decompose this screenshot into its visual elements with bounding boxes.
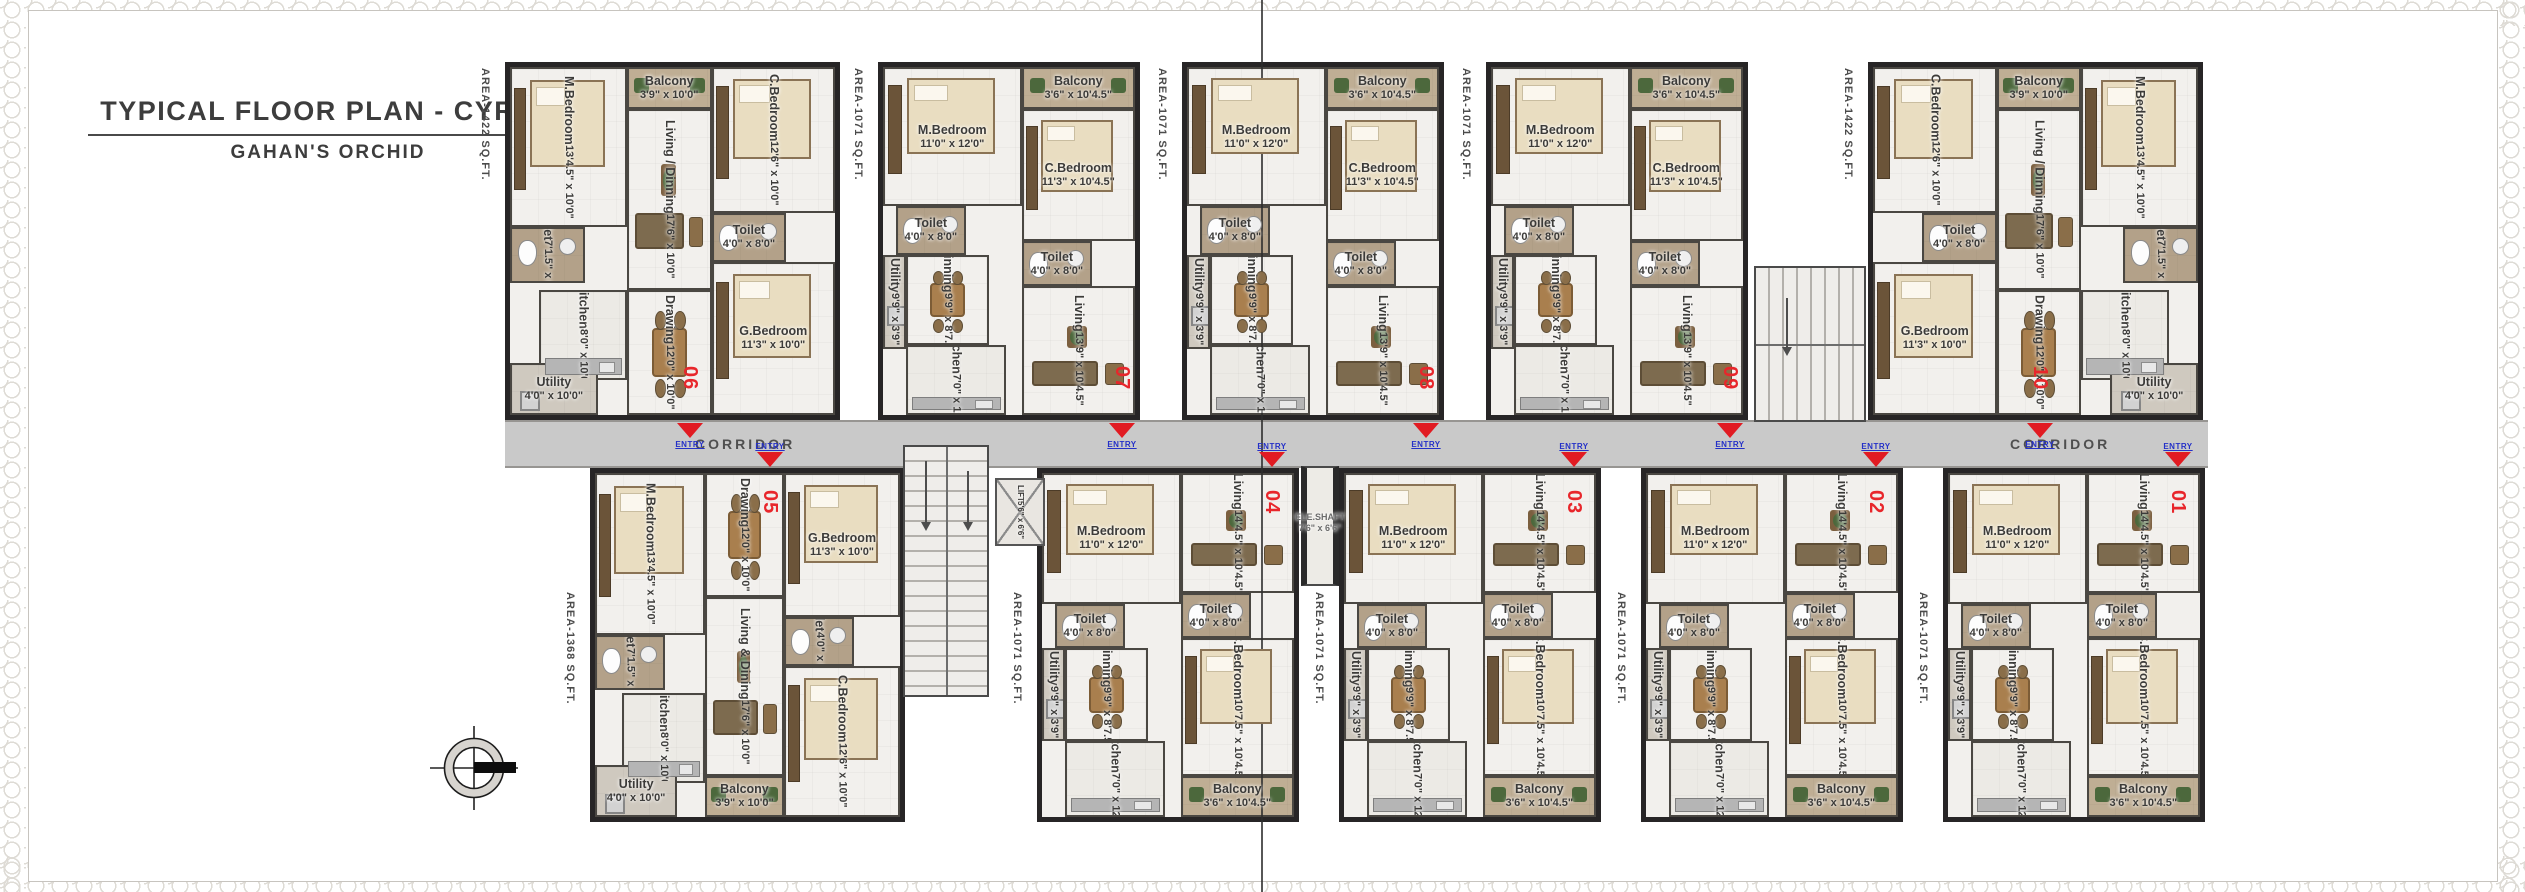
unit-number: 10 (2028, 366, 2051, 390)
room-toilet-1: Toilet4'0" x 8'0" (1961, 604, 2032, 649)
room-m-bedroom: M.Bedroom11'0" x 12'0" (1187, 67, 1326, 206)
room-g-bedroom: G.Bedroom11'3" x 10'0" (712, 262, 836, 415)
coffee-table-icon (1868, 545, 1888, 566)
wardrobe-icon (1496, 85, 1510, 174)
room-m-bedroom: M.Bedroom11'0" x 12'0" (1344, 473, 1483, 604)
room-label: Dinning9'9" x 8'7.5" (2005, 648, 2020, 741)
room-label: Dinning9'9" x 8'7.5" (1703, 648, 1718, 741)
room-toilet-2: Toilet4'0" x 8'0" (1785, 593, 1856, 638)
room-label: Toilet4'0" x 8'0" (905, 216, 957, 244)
room-label: Balcony3'6" x 10'4.5" (1652, 74, 1720, 102)
room-utility: Utility9'9" x 3'9" (883, 255, 906, 349)
room-utility: Utility9'9" x 3'9" (1646, 648, 1669, 741)
room-dinning: Dinning9'9" x 8'7.5" (1210, 255, 1293, 345)
room-label: C.Bedroom10'7.5" x 10'4.5" (1230, 638, 1245, 776)
room-label: Balcony3'9" x 10'0" (715, 782, 773, 810)
entry-label: ENTRY (1250, 442, 1294, 451)
entry-label: ENTRY (668, 440, 712, 449)
room-balcony: Balcony3'6" x 10'4.5" (1785, 776, 1898, 817)
room-label: C.Bedroom11'3" x 10'4.5" (1042, 161, 1115, 189)
entry-arrow-icon (1863, 452, 1889, 467)
toilet-seat-icon (518, 240, 537, 266)
room-kitchen: Kitchen7'0" x 12'0" (1367, 741, 1468, 817)
room-label: Toilet4'0" x 8'0" (723, 223, 775, 251)
room-m-bedroom: M.Bedroom11'0" x 12'0" (883, 67, 1022, 206)
room-label: Kitchen8'0" x 10'0" (576, 290, 591, 380)
room-c-bedroom: C.Bedroom11'3" x 10'4.5" (1022, 109, 1135, 241)
room-label: G.Bedroom11'3" x 10'0" (739, 324, 807, 352)
room-toilet-1: Toilet7'1.5" x 6'3" (510, 227, 585, 283)
lift-label: LIFT5'6" x 6'6" (1015, 485, 1025, 540)
room-balcony: Balcony3'9" x 10'0" (1997, 67, 2082, 109)
wardrobe-icon (1330, 126, 1342, 210)
room-label: Toilet4'0" x 8'0" (1064, 612, 1116, 640)
room-label: Living14'4.5" x 10'4.5" (2136, 473, 2151, 593)
entry-label: ENTRY (1854, 442, 1898, 451)
room-dinning: Dinning9'9" x 8'7.5" (1669, 648, 1752, 741)
floor-plan-page: TYPICAL FLOOR PLAN - CYRUS GAHAN'S ORCHI… (0, 0, 2525, 892)
wardrobe-icon (2085, 88, 2097, 190)
entry-arrow-icon (2027, 423, 2053, 438)
wash-basin-icon (829, 627, 846, 644)
room-m-bedroom: M.Bedroom13'4.5" x 10'0" (595, 473, 705, 635)
unit-01: M.Bedroom11'0" x 12'0"Living14'4.5" x 10… (1943, 468, 2205, 822)
room-label: M.Bedroom11'0" x 12'0" (1526, 123, 1595, 151)
room-label: Toilet4'0" x 8'0" (1970, 612, 2022, 640)
wash-basin-icon (559, 238, 576, 255)
room-toilet-1: Toilet4'0" x 8'0" (1357, 604, 1428, 649)
room-kitchen: Kitchen8'0" x 10'0" (539, 290, 627, 380)
room-dinning: Dinning9'9" x 8'7.5" (1971, 648, 2054, 741)
room-kitchen: Kitchen7'0" x 12'0" (1669, 741, 1770, 817)
wash-basin-icon (640, 646, 657, 663)
sofa-icon (2097, 543, 2163, 566)
coffee-table-icon (2058, 217, 2073, 247)
wash-basin-icon (2172, 238, 2189, 255)
staircase-top (1754, 266, 1866, 422)
entry-arrow-icon (1109, 423, 1135, 438)
room-m-bedroom: M.Bedroom11'0" x 12'0" (1646, 473, 1785, 604)
room-living: Living13'9" x 10'4.5" (1326, 286, 1439, 415)
room-label: M.Bedroom13'4.5" x 10'0" (561, 76, 576, 219)
room-m-bedroom: M.Bedroom13'4.5" x 10'0" (510, 67, 627, 227)
room-label: Kitchen7'0" x 12'0" (949, 345, 964, 415)
edge-pattern-left (0, 0, 26, 892)
room-toilet-1: Toilet4'0" x 8'0" (1659, 604, 1730, 649)
unit-area-label: AREA-1071 SQ.FT. (1011, 592, 1023, 705)
room-kitchen: Kitchen7'0" x 12'0" (1514, 345, 1615, 415)
room-label: Living13'9" x 10'4.5" (1679, 295, 1694, 406)
plant-icon (1793, 787, 1808, 802)
room-label: M.Bedroom13'4.5" x 10'0" (642, 483, 657, 626)
room-label: Toilet4'0" x 8'0" (1209, 216, 1261, 244)
room-toilet-2: Toilet4'0" x 8'0" (1483, 593, 1554, 638)
unit-number: 07 (1110, 366, 1133, 390)
room-toilet-2: Toilet4'0" x 8'0" (712, 213, 787, 262)
room-dinning: Dinning9'9" x 8'7.5" (906, 255, 989, 345)
wardrobe-icon (716, 86, 729, 179)
room-label: Utility9'9" x 3'9" (1348, 651, 1363, 738)
plant-icon (1874, 787, 1889, 802)
room-label: Balcony3'6" x 10'4.5" (2109, 782, 2177, 810)
room-g-bedroom: G.Bedroom11'3" x 10'0" (784, 473, 900, 617)
plant-icon (1189, 787, 1204, 802)
room-label: Living13'9" x 10'4.5" (1375, 295, 1390, 406)
wardrobe-icon (888, 85, 902, 174)
wardrobe-icon (1877, 86, 1890, 179)
plant-icon (1270, 787, 1285, 802)
room-label: C.Bedroom10'7.5" x 10'4.5" (2136, 638, 2151, 776)
plant-icon (1111, 78, 1126, 93)
wardrobe-icon (514, 88, 526, 190)
room-label: M.Bedroom11'0" x 12'0" (1222, 123, 1291, 151)
room-c-bedroom: C.Bedroom11'3" x 10'4.5" (1326, 109, 1439, 241)
wardrobe-icon (1185, 656, 1197, 744)
room-label: Utility4'0" x 10'0" (525, 375, 583, 403)
wardrobe-icon (1487, 656, 1499, 744)
room-label: Toilet4'0" x 8'0" (812, 617, 827, 665)
room-toilet-2: Toilet4'0" x 8'0" (1630, 241, 1701, 286)
edge-pattern-right (2499, 0, 2525, 892)
plant-icon (1415, 78, 1430, 93)
entry-label: ENTRY (1552, 442, 1596, 451)
unit-number: 08 (1414, 366, 1437, 390)
room-dinning: Dinning9'9" x 8'7.5" (1065, 648, 1148, 741)
room-label: Toilet4'0" x 8'0" (2096, 602, 2148, 630)
room-label: Toilet4'0" x 8'0" (1513, 216, 1565, 244)
unit-number: 04 (1260, 490, 1283, 514)
room-label: Toilet4'0" x 8'0" (1794, 602, 1846, 630)
unit-area-label: AREA-1368 SQ.FT. (564, 592, 576, 705)
room-balcony: Balcony3'6" x 10'4.5" (1022, 67, 1135, 109)
room-toilet-1: Toilet4'0" x 8'0" (1504, 206, 1575, 255)
room-label: Utility4'0" x 10'0" (2125, 375, 2183, 403)
room-living: Living13'9" x 10'4.5" (1022, 286, 1135, 415)
unit-area-label: AREA-1071 SQ.FT. (1156, 68, 1168, 181)
unit-09: M.Bedroom11'0" x 12'0"Balcony3'6" x 10'4… (1486, 62, 1748, 420)
room-m-bedroom: M.Bedroom11'0" x 12'0" (1948, 473, 2087, 604)
room-label: Utility9'9" x 3'9" (1046, 651, 1061, 738)
plant-icon (1030, 78, 1045, 93)
room-living-dining: Living / Dinning17'6" x 10'0" (1997, 109, 2082, 290)
room-label: Kitchen8'0" x 10'0" (2117, 290, 2132, 380)
room-toilet-1: Toilet4'0" x 8'0" (896, 206, 967, 255)
room-label: Balcony3'6" x 10'4.5" (1348, 74, 1416, 102)
room-label: C.Bedroom11'3" x 10'4.5" (1346, 161, 1419, 189)
room-label: Utility4'0" x 10'0" (607, 777, 665, 805)
room-c-bedroom: C.Bedroom10'7.5" x 10'4.5" (2087, 638, 2200, 776)
room-label: Balcony3'6" x 10'4.5" (1203, 782, 1271, 810)
room-utility: Utility9'9" x 3'9" (1948, 648, 1971, 741)
toilet-seat-icon (2131, 240, 2150, 266)
room-c-bedroom: C.Bedroom12'6" x 10'0" (712, 67, 836, 213)
room-label: C.Bedroom10'7.5" x 10'4.5" (1834, 638, 1849, 776)
room-label: Dinning9'9" x 8'7.5" (1548, 255, 1563, 345)
room-label: Drawing12'0" x 10'0" (662, 295, 677, 409)
room-label: Toilet4'0" x 8'0" (1335, 250, 1387, 278)
room-toilet-2: Toilet4'0" x 8'0" (1922, 213, 1997, 262)
room-label: Toilet4'0" x 8'0" (1366, 612, 1418, 640)
wardrobe-icon (1349, 490, 1363, 573)
room-kitchen: Kitchen8'0" x 10'0" (622, 693, 704, 782)
coffee-table-icon (1566, 545, 1586, 566)
wardrobe-icon (1047, 490, 1061, 573)
room-label: M.Bedroom11'0" x 12'0" (1379, 524, 1448, 552)
unit-area-label: AREA-1071 SQ.FT. (1460, 68, 1472, 181)
room-utility: Utility9'9" x 3'9" (1491, 255, 1514, 349)
room-label: Toilet7'1.5" x 6'3" (2153, 227, 2168, 283)
room-label: M.Bedroom11'0" x 12'0" (1077, 524, 1146, 552)
wardrobe-icon (716, 282, 729, 379)
room-label: M.Bedroom11'0" x 12'0" (1983, 524, 2052, 552)
wardrobe-icon (2091, 656, 2103, 744)
room-kitchen: Kitchen7'0" x 12'0" (1971, 741, 2072, 817)
room-label: Balcony3'6" x 10'4.5" (1807, 782, 1875, 810)
room-drawing: Drawing12'0" x 10'0" (1997, 290, 2082, 415)
room-toilet-2: Toilet4'0" x 8'0" (1181, 593, 1252, 638)
entry-arrow-icon (757, 452, 783, 467)
unit-number: 02 (1864, 490, 1887, 514)
unit-03: M.Bedroom11'0" x 12'0"Living14'4.5" x 10… (1339, 468, 1601, 822)
unit-number: 01 (2166, 490, 2189, 514)
room-kitchen: Kitchen8'0" x 10'0" (2081, 290, 2169, 380)
wardrobe-icon (1651, 490, 1665, 573)
room-toilet-1: Toilet7'1.5" x 6'3" (2123, 227, 2198, 283)
sofa-icon (1640, 361, 1706, 386)
unit-area-label: AREA-1071 SQ.FT. (1917, 592, 1929, 705)
unit-number: 05 (758, 490, 781, 514)
room-g-bedroom: G.Bedroom11'3" x 10'0" (1873, 262, 1997, 415)
room-balcony: Balcony3'6" x 10'4.5" (1630, 67, 1743, 109)
sofa-icon (1191, 543, 1257, 566)
room-toilet-2: Toilet4'0" x 8'0" (784, 617, 854, 665)
room-label: Utility9'9" x 3'9" (1952, 651, 1967, 738)
sofa-icon (1032, 361, 1098, 386)
entry-label: ENTRY (2018, 440, 2062, 449)
wardrobe-icon (1877, 282, 1890, 379)
room-label: Balcony3'6" x 10'4.5" (1044, 74, 1112, 102)
room-toilet-1: Toilet7'1.5" x 6'3" (595, 635, 665, 690)
wardrobe-icon (1026, 126, 1038, 210)
ele-shaft: ELE.SHAFT7'6" x 6'6" (1301, 466, 1339, 586)
room-label: Living / Dinning17'6" x 10'0" (2031, 120, 2046, 278)
title-block: TYPICAL FLOOR PLAN - CYRUS GAHAN'S ORCHI… (88, 96, 568, 164)
wardrobe-icon (788, 492, 800, 584)
room-balcony: Balcony3'9" x 10'0" (627, 67, 712, 109)
wardrobe-icon (1953, 490, 1967, 573)
room-label: Toilet7'1.5" x 6'3" (540, 227, 555, 283)
wardrobe-icon (788, 685, 800, 781)
toilet-seat-icon (791, 629, 810, 655)
room-c-bedroom: C.Bedroom12'6" x 10'0" (784, 666, 900, 817)
unit-02: M.Bedroom11'0" x 12'0"Living14'4.5" x 10… (1641, 468, 1903, 822)
room-balcony: Balcony3'6" x 10'4.5" (1181, 776, 1294, 817)
unit-05: M.Bedroom13'4.5" x 10'0"Drawing12'0" x 1… (590, 468, 905, 822)
wardrobe-icon (1192, 85, 1206, 174)
room-label: Toilet7'1.5" x 6'3" (623, 635, 638, 690)
room-label: C.Bedroom12'6" x 10'0" (766, 74, 781, 206)
room-label: Toilet4'0" x 8'0" (1639, 250, 1691, 278)
unit-number: 03 (1562, 490, 1585, 514)
wardrobe-icon (1634, 126, 1646, 210)
entry-label: ENTRY (1404, 440, 1448, 449)
room-m-bedroom: M.Bedroom11'0" x 12'0" (1042, 473, 1181, 604)
room-label: C.Bedroom12'6" x 10'0" (1927, 74, 1942, 206)
room-kitchen: Kitchen7'0" x 12'0" (906, 345, 1007, 415)
room-toilet-1: Toilet4'0" x 8'0" (1055, 604, 1126, 649)
room-label: M.Bedroom11'0" x 12'0" (918, 123, 987, 151)
room-dinning: Dinning9'9" x 8'7.5" (1514, 255, 1597, 345)
room-label: Dinning9'9" x 8'7.5" (1401, 648, 1416, 741)
room-label: Drawing12'0" x 10'0" (2031, 295, 2046, 409)
toilet-seat-icon (602, 648, 621, 674)
room-utility: Utility9'9" x 3'9" (1187, 255, 1210, 349)
room-label: Kitchen7'0" x 12'0" (1557, 345, 1572, 415)
coffee-table-icon (689, 217, 704, 247)
plant-icon (1491, 787, 1506, 802)
entry-label: ENTRY (1708, 440, 1752, 449)
room-c-bedroom: C.Bedroom10'7.5" x 10'4.5" (1483, 638, 1596, 776)
ele-shaft-label: ELE.SHAFT7'6" x 6'6" (1295, 512, 1345, 534)
room-balcony: Balcony3'6" x 10'4.5" (2087, 776, 2200, 817)
coffee-table-icon (763, 704, 777, 734)
room-m-bedroom: M.Bedroom11'0" x 12'0" (1491, 67, 1630, 206)
room-label: Toilet4'0" x 8'0" (1190, 602, 1242, 630)
unit-number: 09 (1718, 366, 1741, 390)
room-c-bedroom: C.Bedroom10'7.5" x 10'4.5" (1181, 638, 1294, 776)
page-title: TYPICAL FLOOR PLAN - CYRUS (88, 96, 568, 136)
room-label: Toilet4'0" x 8'0" (1933, 223, 1985, 251)
unit-area-label: AREA-1071 SQ.FT. (1313, 592, 1325, 705)
room-toilet-2: Toilet4'0" x 8'0" (2087, 593, 2158, 638)
room-label: G.Bedroom11'3" x 10'0" (808, 531, 876, 559)
room-balcony: Balcony3'6" x 10'4.5" (1326, 67, 1439, 109)
unit-07: M.Bedroom11'0" x 12'0"Balcony3'6" x 10'4… (878, 62, 1140, 420)
entry-arrow-icon (1413, 423, 1439, 438)
room-living-dining: Living & Dining17'6" x 10'0" (705, 597, 784, 776)
room-label: Living & Dining17'6" x 10'0" (737, 608, 752, 764)
room-label: C.Bedroom10'7.5" x 10'4.5" (1532, 638, 1547, 776)
sofa-icon (1336, 361, 1402, 386)
room-c-bedroom: C.Bedroom12'6" x 10'0" (1873, 67, 1997, 213)
unit-area-label: AREA-1071 SQ.FT. (1615, 592, 1627, 705)
entry-arrow-icon (2165, 452, 2191, 467)
staircase-bottom (903, 445, 989, 697)
room-c-bedroom: C.Bedroom10'7.5" x 10'4.5" (1785, 638, 1898, 776)
room-label: Utility9'9" x 3'9" (1495, 258, 1510, 345)
plant-icon (1638, 78, 1653, 93)
room-label: Kitchen7'0" x 12'0" (2014, 741, 2029, 817)
unit-08: M.Bedroom11'0" x 12'0"Balcony3'6" x 10'4… (1182, 62, 1444, 420)
coffee-table-icon (1264, 545, 1284, 566)
room-label: Utility9'9" x 3'9" (1650, 651, 1665, 738)
unit-04: M.Bedroom11'0" x 12'0"Living14'4.5" x 10… (1037, 468, 1299, 822)
room-balcony: Balcony3'9" x 10'0" (705, 776, 784, 817)
room-drawing: Drawing12'0" x 10'0" (627, 290, 712, 415)
room-dinning: Dinning9'9" x 8'7.5" (1367, 648, 1450, 741)
room-utility: Utility9'9" x 3'9" (1344, 648, 1367, 741)
room-label: Living14'4.5" x 10'4.5" (1230, 473, 1245, 593)
entry-label: ENTRY (1100, 440, 1144, 449)
entry-label: ENTRY (2156, 442, 2200, 451)
room-living-dining: Living / Dinning17'6" x 10'0" (627, 109, 712, 290)
room-label: Living14'4.5" x 10'4.5" (1532, 473, 1547, 593)
plant-icon (1572, 787, 1587, 802)
room-label: Kitchen7'0" x 12'0" (1108, 741, 1123, 817)
room-label: Balcony3'9" x 10'0" (2010, 74, 2068, 102)
room-balcony: Balcony3'6" x 10'4.5" (1483, 776, 1596, 817)
room-label: M.Bedroom13'4.5" x 10'0" (2132, 76, 2147, 219)
entry-arrow-icon (1259, 452, 1285, 467)
room-kitchen: Kitchen7'0" x 12'0" (1210, 345, 1311, 415)
room-label: Dinning9'9" x 8'7.5" (940, 255, 955, 345)
room-m-bedroom: M.Bedroom13'4.5" x 10'0" (2081, 67, 2198, 227)
room-label: C.Bedroom12'6" x 10'0" (835, 675, 850, 807)
room-utility: Utility9'9" x 3'9" (1042, 648, 1065, 741)
room-c-bedroom: C.Bedroom11'3" x 10'4.5" (1630, 109, 1743, 241)
room-kitchen: Kitchen7'0" x 12'0" (1065, 741, 1166, 817)
room-label: Living / Dinning17'6" x 10'0" (662, 120, 677, 278)
unit-area-label: AREA-1422 SQ.FT. (1842, 68, 1854, 181)
unit-area-label: AREA-1422 SQ.FT. (479, 68, 491, 181)
plant-icon (1719, 78, 1734, 93)
room-label: Kitchen7'0" x 12'0" (1712, 741, 1727, 817)
room-label: Toilet4'0" x 8'0" (1668, 612, 1720, 640)
wardrobe-icon (1789, 656, 1801, 744)
unit-number: 06 (678, 366, 701, 390)
unit-area-label: AREA-1071 SQ.FT. (852, 68, 864, 181)
room-label: Dinning9'9" x 8'7.5" (1099, 648, 1114, 741)
room-label: Toilet4'0" x 8'0" (1031, 250, 1083, 278)
lift: LIFT5'6" x 6'6" (995, 478, 1045, 546)
compass-icon (428, 722, 520, 814)
page-subtitle: GAHAN'S ORCHID (88, 142, 568, 164)
plant-icon (2176, 787, 2191, 802)
room-toilet-1: Toilet4'0" x 8'0" (1200, 206, 1271, 255)
room-label: Utility9'9" x 3'9" (1191, 258, 1206, 345)
room-toilet-2: Toilet4'0" x 8'0" (1022, 241, 1093, 286)
room-label: Dinning9'9" x 8'7.5" (1244, 255, 1259, 345)
room-label: Kitchen7'0" x 12'0" (1410, 741, 1425, 817)
coffee-table-icon (2170, 545, 2190, 566)
room-label: Kitchen7'0" x 12'0" (1253, 345, 1268, 415)
unit-06: M.Bedroom13'4.5" x 10'0"Balcony3'9" x 10… (505, 62, 840, 420)
room-label: Utility9'9" x 3'9" (887, 258, 902, 345)
room-label: Balcony3'6" x 10'4.5" (1505, 782, 1573, 810)
entry-arrow-icon (1561, 452, 1587, 467)
entry-arrow-icon (677, 423, 703, 438)
room-label: Living14'4.5" x 10'4.5" (1834, 473, 1849, 593)
sofa-icon (1493, 543, 1559, 566)
sofa-icon (1795, 543, 1861, 566)
room-label: C.Bedroom11'3" x 10'4.5" (1650, 161, 1723, 189)
room-label: G.Bedroom11'3" x 10'0" (1901, 324, 1969, 352)
room-label: Living13'9" x 10'4.5" (1071, 295, 1086, 406)
room-label: Drawing12'0" x 10'0" (737, 478, 752, 592)
room-toilet-2: Toilet4'0" x 8'0" (1326, 241, 1397, 286)
room-living: Living13'9" x 10'4.5" (1630, 286, 1743, 415)
entry-arrow-icon (1717, 423, 1743, 438)
room-label: M.Bedroom11'0" x 12'0" (1681, 524, 1750, 552)
room-label: Kitchen8'0" x 10'0" (656, 693, 671, 782)
room-label: Toilet4'0" x 8'0" (1492, 602, 1544, 630)
wardrobe-icon (599, 494, 611, 597)
plant-icon (1334, 78, 1349, 93)
entry-label: ENTRY (748, 442, 792, 451)
plant-icon (2095, 787, 2110, 802)
room-label: Balcony3'9" x 10'0" (640, 74, 698, 102)
